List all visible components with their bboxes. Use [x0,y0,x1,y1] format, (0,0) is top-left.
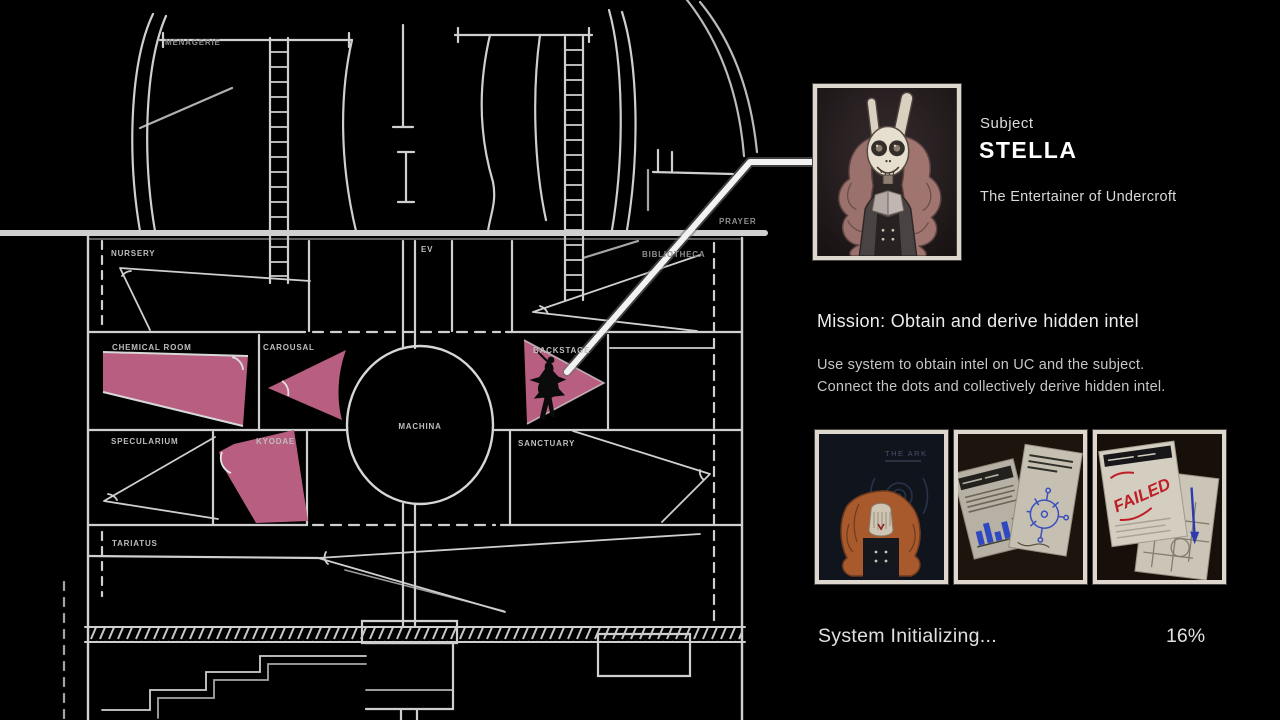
room-label-carousal: CAROUSAL [263,343,315,352]
hands-over-face [869,503,893,536]
room-label-prayer: PRAYER [719,217,756,226]
subject-title: The Entertainer of Undercroft [980,189,1177,205]
status-percent: 16% [1166,625,1205,648]
highlighted-rooms [103,340,604,523]
room-carousal-highlight[interactable] [268,350,346,420]
dark-coat [863,538,899,580]
room-label-bibliotheca: BIBLIOTHECA [642,250,705,259]
subject-label: Subject [980,115,1034,132]
the-ark-caption: THE ARK [885,449,928,458]
room-label-sanctuary: SANCTUARY [518,439,575,448]
room-label-ev: EV [421,245,433,254]
room-label-kyodae: KYODAE [256,437,295,446]
intel-thumbnail-failed-note[interactable]: FAILED [1093,430,1226,584]
mission-body: Use system to obtain intel on UC and the… [817,355,1166,398]
subject-portrait [813,84,961,260]
stella-portrait-art [817,88,957,256]
room-label-tariatus: TARIATUS [112,539,158,548]
failed-paper: FAILED [1099,441,1188,547]
room-label-chemical-room: CHEMICAL ROOM [112,343,192,352]
mission-body-line2: Connect the dots and collectively derive… [817,377,1166,399]
briefing-screen: MENAGERIE PRAYER NURSERY EV BIBLIOTHECA … [0,0,1280,720]
room-chemical-highlight[interactable] [103,352,248,426]
subject-name: STELLA [979,137,1077,164]
intel-thumbnail-energy-report[interactable] [954,430,1087,584]
mission-body-line1: Use system to obtain intel on UC and the… [817,355,1166,377]
status-text: System Initializing... [818,625,997,648]
room-label-nursery: NURSERY [111,249,155,258]
room-label-machina: MACHINA [398,422,441,431]
mission-heading: Mission: Obtain and derive hidden intel [817,311,1139,332]
room-label-specularium: SPECULARIUM [111,437,178,446]
conveyor-hatch [88,628,743,642]
room-label-menagerie: MENAGERIE [165,38,221,47]
room-label-backstage: BACKSTAGE [533,346,590,355]
connector-line [567,162,818,372]
intel-thumbnail-the-ark[interactable]: THE ARK [815,430,948,584]
